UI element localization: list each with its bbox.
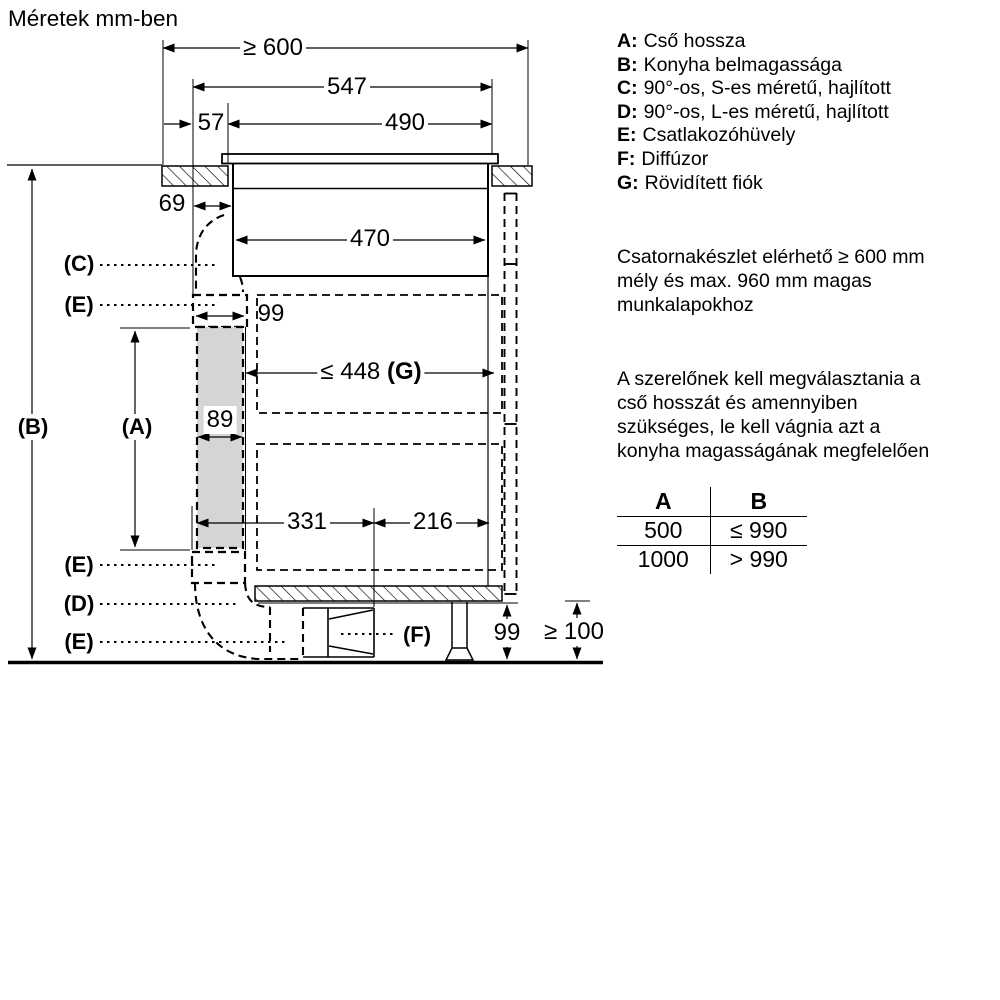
appliance-foot	[446, 602, 473, 660]
legend: A:Cső hossza B:Konyha belmagassága C:90°…	[617, 30, 891, 195]
label-b: (B)	[16, 414, 51, 440]
legend-text-c: 90°-os, S-es méretű, hajlított	[644, 77, 891, 99]
legend-key-e: E:	[617, 124, 637, 146]
dim-99-plinth: 99	[491, 619, 524, 647]
dim-216: 216	[410, 508, 456, 536]
legend-text-a: Cső hossza	[644, 30, 746, 52]
legend-text-d: 90°-os, L-es méretű, hajlított	[644, 101, 889, 123]
dim-top-width: ≥ 600	[240, 34, 306, 62]
connector-sleeve-e-bottom	[192, 552, 245, 583]
note-worktop-line2: mély és max. 960 mm magas	[617, 269, 925, 293]
note-installer-line1: A szerelőnek kell megválasztania a	[617, 367, 929, 391]
dim-drawer-g-label: (G)	[387, 358, 422, 385]
legend-key-d: D:	[617, 101, 638, 123]
dim-99-connector: 99	[255, 300, 288, 328]
table-cell-a2: 1000	[617, 545, 710, 574]
legend-text-e: Csatlakozóhüvely	[643, 124, 796, 146]
note-worktop-line3: munkalapokhoz	[617, 293, 925, 317]
table-row: 1000 > 990	[617, 545, 807, 574]
table-header-a: A	[617, 487, 710, 516]
legend-item-a: A:Cső hossza	[617, 30, 891, 54]
table-header-row: A B	[617, 487, 807, 516]
dim-89: 89	[204, 406, 237, 434]
dim-470: 470	[347, 225, 393, 253]
label-c: (C)	[62, 251, 97, 277]
note-installer: A szerelőnek kell megválasztania a cső h…	[617, 367, 929, 463]
hob-glass-top	[222, 154, 498, 164]
dim-69: 69	[156, 190, 189, 218]
dim-331: 331	[284, 508, 330, 536]
connector-sleeve-e-top	[193, 295, 247, 327]
note-installer-line4: konyha magasságának megfelelően	[617, 439, 929, 463]
note-worktop-line1: Csatornakészlet elérhető ≥ 600 mm	[617, 245, 925, 269]
page-title: Méretek mm-ben	[8, 6, 178, 32]
table-cell-b2: > 990	[710, 545, 807, 574]
table-header-b: B	[710, 487, 807, 516]
pipe-length-table: A B 500 ≤ 990 1000 > 990	[617, 487, 807, 574]
label-d: (D)	[62, 591, 97, 617]
legend-text-g: Rövidített fiók	[645, 172, 763, 194]
legend-item-b: B:Konyha belmagassága	[617, 54, 891, 78]
dim-490: 490	[382, 109, 428, 137]
legend-key-f: F:	[617, 148, 635, 170]
dim-clearance-100: ≥ 100	[541, 618, 607, 646]
legend-key-g: G:	[617, 172, 639, 194]
dim-drawer-g: ≤ 448 (G)	[317, 358, 424, 386]
legend-key-a: A:	[617, 30, 638, 52]
legend-item-f: F:Diffúzor	[617, 148, 891, 172]
table-cell-a1: 500	[617, 516, 710, 545]
legend-item-g: G:Rövidített fiók	[617, 172, 891, 196]
table-cell-b1: ≤ 990	[710, 516, 807, 545]
legend-text-b: Konyha belmagassága	[644, 54, 842, 76]
note-installer-line2: cső hosszát és amennyiben	[617, 391, 929, 415]
label-e-top: (E)	[62, 292, 95, 318]
label-e-mid: (E)	[62, 552, 95, 578]
note-installer-line3: szükséges, le kell vágnia azt a	[617, 415, 929, 439]
label-e-bottom: (E)	[62, 629, 95, 655]
legend-text-f: Diffúzor	[641, 148, 708, 170]
label-a: (A)	[120, 414, 155, 440]
legend-item-e: E:Csatlakozóhüvely	[617, 124, 891, 148]
legend-item-d: D:90°-os, L-es méretű, hajlított	[617, 101, 891, 125]
diffuser-f	[303, 608, 374, 657]
dim-547: 547	[324, 73, 370, 101]
dim-drawer-g-value: ≤ 448	[320, 358, 380, 385]
note-worktop: Csatornakészlet elérhető ≥ 600 mm mély é…	[617, 245, 925, 317]
label-f: (F)	[401, 622, 433, 648]
legend-key-c: C:	[617, 77, 638, 99]
extension-lines	[120, 40, 590, 607]
dimension-lines	[32, 48, 577, 659]
legend-key-b: B:	[617, 54, 638, 76]
dim-57: 57	[195, 109, 228, 137]
dimension-sheet: Méretek mm-ben ≥ 600 547 57 490 69 470 9…	[0, 0, 1000, 1000]
table-row: 500 ≤ 990	[617, 516, 807, 545]
legend-item-c: C:90°-os, S-es méretű, hajlított	[617, 77, 891, 101]
plinth-board	[255, 586, 518, 603]
right-duct-channel	[505, 193, 517, 594]
